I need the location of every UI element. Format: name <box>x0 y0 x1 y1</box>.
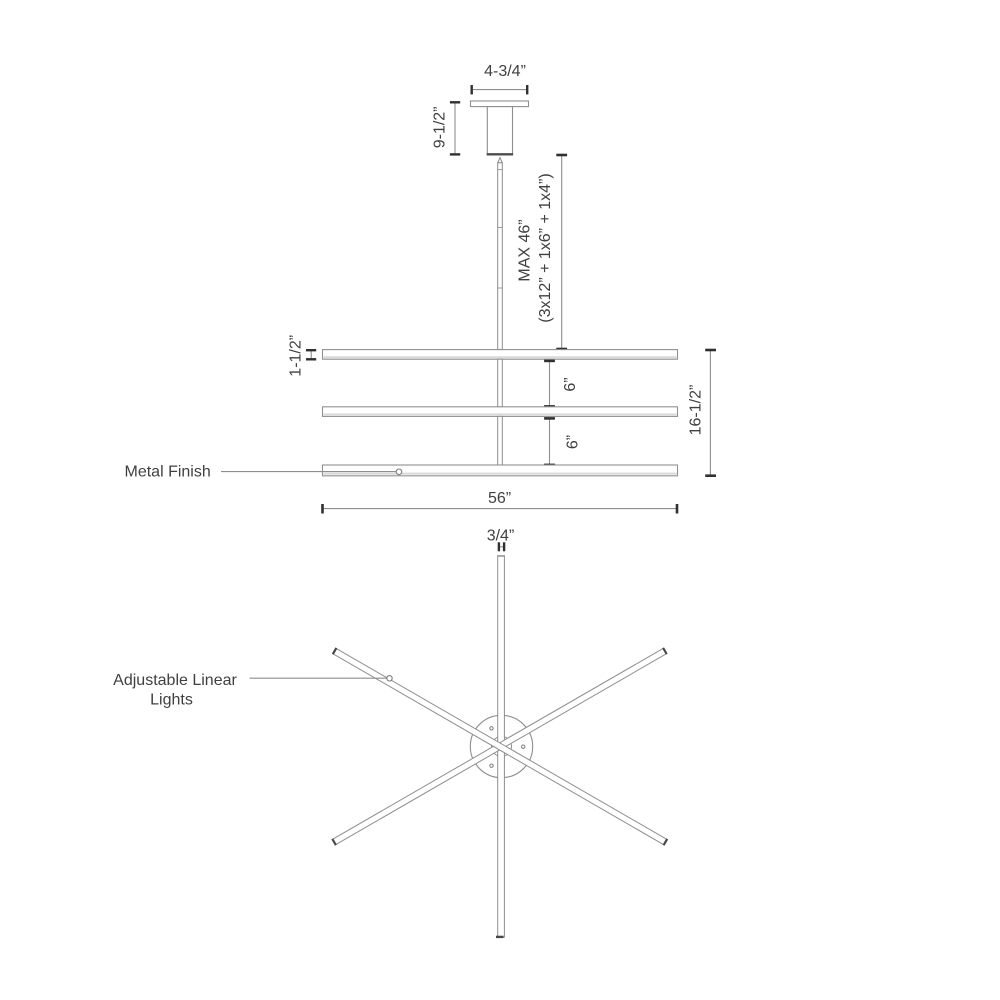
svg-text:4-3/4”: 4-3/4” <box>484 63 526 80</box>
svg-text:(3x12” + 1x6” + 1x4”): (3x12” + 1x6” + 1x4”) <box>537 173 554 322</box>
svg-text:16-1/2”: 16-1/2” <box>688 385 705 436</box>
svg-text:9-1/2”: 9-1/2” <box>431 107 448 149</box>
svg-text:MAX 46”: MAX 46” <box>517 219 534 281</box>
svg-text:56”: 56” <box>488 490 511 507</box>
svg-text:Lights: Lights <box>150 691 193 708</box>
svg-text:Metal Finish: Metal Finish <box>125 464 211 481</box>
svg-text:3/4”: 3/4” <box>487 527 515 544</box>
svg-text:6”: 6” <box>564 435 581 449</box>
svg-text:1-1/2”: 1-1/2” <box>288 335 305 377</box>
svg-text:Adjustable Linear: Adjustable Linear <box>113 672 237 689</box>
svg-text:6”: 6” <box>562 377 579 391</box>
